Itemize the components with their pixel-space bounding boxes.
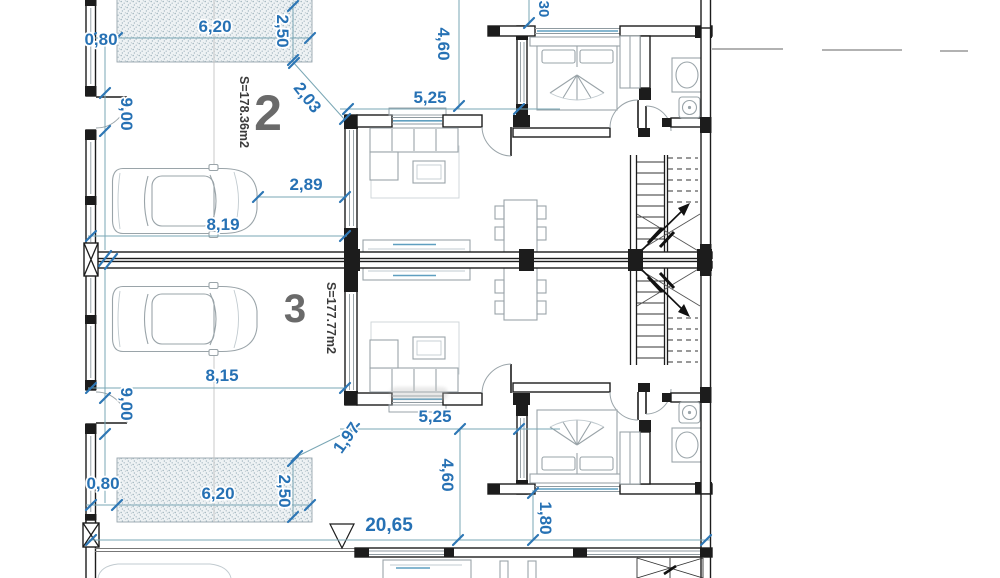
unit-3-number: 3 bbox=[284, 287, 306, 331]
dim-top-cut: 30 bbox=[535, 1, 552, 18]
dim-garage-clearance: 2,89 bbox=[289, 175, 322, 194]
dim-top-patio-depth: 4,60 bbox=[434, 27, 453, 60]
tv-bench-icon bbox=[363, 240, 470, 252]
dim-top-porch-width: 6,20 bbox=[198, 17, 231, 36]
party-wall-column bbox=[84, 243, 98, 276]
east-wall bbox=[700, 26, 712, 252]
dim-top-porch-depth: 2,50 bbox=[273, 14, 292, 47]
dim-top-side-door: 9,00 bbox=[117, 97, 136, 130]
living-west-wall bbox=[344, 115, 358, 254]
dim-bottom-porch-depth: 2,50 bbox=[275, 474, 294, 507]
wardrobe-icon bbox=[620, 36, 640, 88]
dim-bottom-patio-depth: 4,60 bbox=[438, 458, 457, 491]
watermark bbox=[390, 387, 448, 400]
unit-2-number: 2 bbox=[254, 85, 282, 141]
unit-2-area: S=178.36m2 bbox=[237, 76, 251, 148]
dim-bottom-living-width: 5,25 bbox=[418, 407, 451, 426]
dim-bottom-porch-width: 6,20 bbox=[201, 484, 234, 503]
dim-top-setback: 0,80 bbox=[84, 30, 117, 49]
dim-bottom-side-door: 9,00 bbox=[117, 387, 136, 420]
dim-garage-depth-unit2: 8,19 bbox=[206, 215, 239, 234]
bed-icon bbox=[530, 37, 626, 110]
unit-3-area: S=177.77m2 bbox=[324, 282, 338, 354]
dim-garage-depth-unit3: 8,15 bbox=[205, 366, 238, 385]
floor-plan-drawing: 0,80 6,20 2,50 2,03 4,60 5,25 30 9,00 2,… bbox=[0, 0, 1000, 578]
dim-total-width: 20,65 bbox=[365, 515, 413, 536]
dim-rear-strip: 1,80 bbox=[536, 501, 555, 534]
dim-bottom-setback: 0,80 bbox=[86, 474, 119, 493]
dim-top-living-width: 5,25 bbox=[413, 88, 446, 107]
floor-plan-page: 0,80 6,20 2,50 2,03 4,60 5,25 30 9,00 2,… bbox=[0, 0, 1000, 578]
